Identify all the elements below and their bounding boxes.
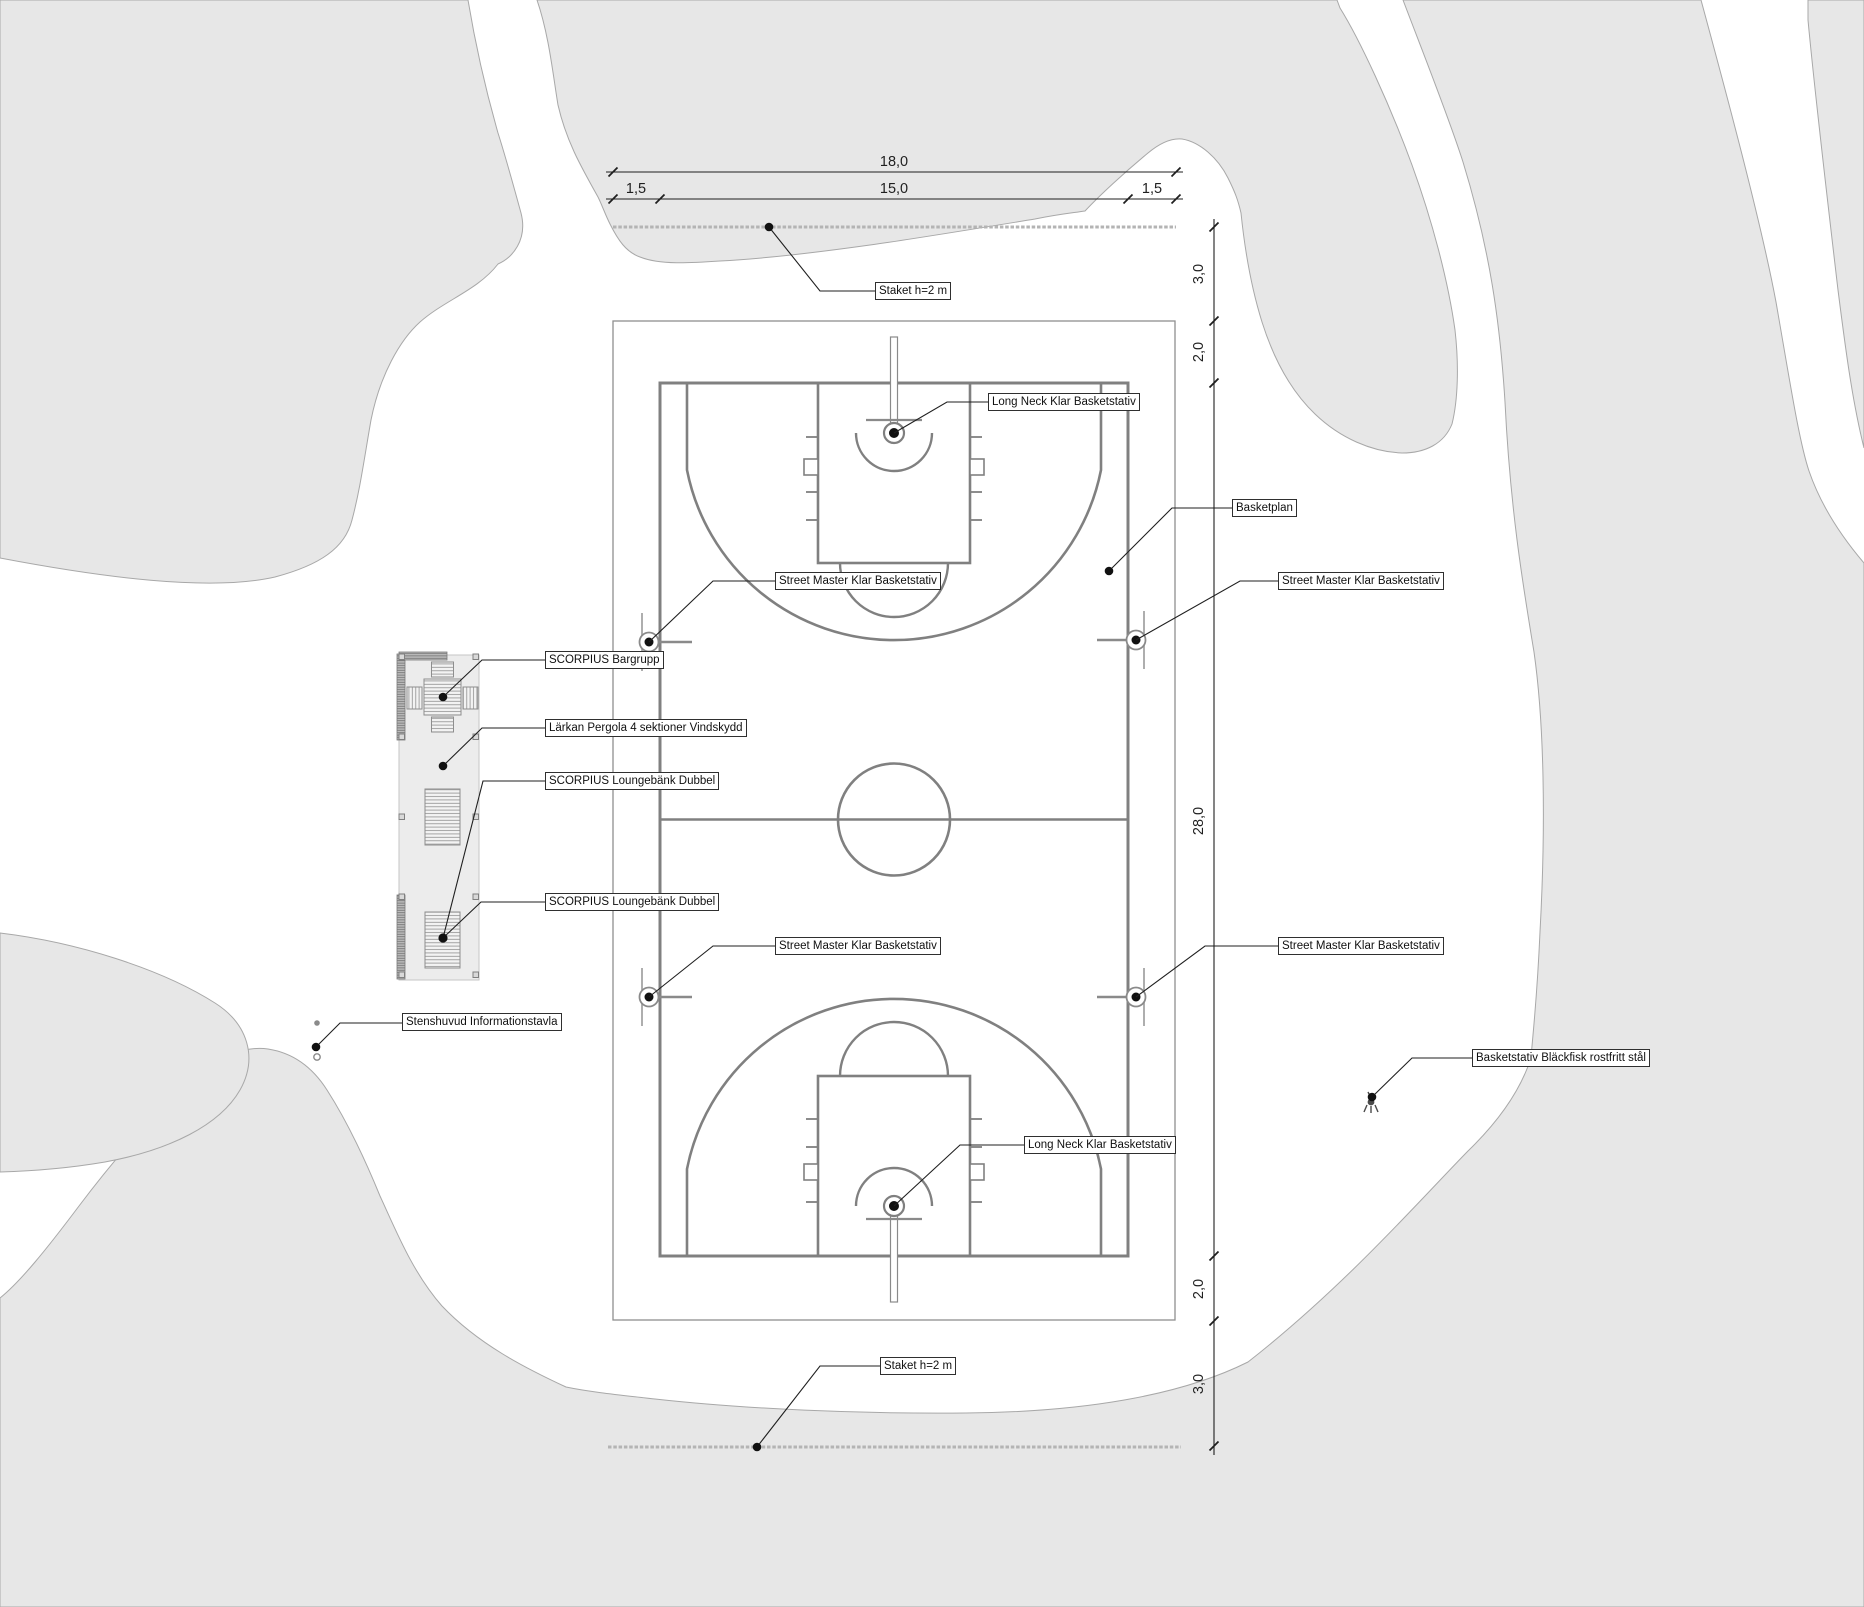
label-staket-top: Staket h=2 m bbox=[875, 282, 951, 300]
lounge-bench-1 bbox=[425, 789, 460, 845]
hoop-pole bbox=[891, 337, 898, 425]
leader-infotavla bbox=[316, 1023, 402, 1047]
lane-markers-top bbox=[804, 437, 984, 520]
long-neck-hoop-bottom bbox=[866, 1196, 922, 1302]
basketball-court bbox=[660, 383, 1128, 1256]
street-master-bottom-right bbox=[1097, 968, 1146, 1026]
dim-seg-right: 1,5 bbox=[1142, 181, 1162, 197]
dimensions-vertical: 3,0 2,0 28,0 2,0 3,0 bbox=[1191, 219, 1219, 1455]
leader-longneck-top bbox=[894, 402, 988, 433]
info-board-dot bbox=[314, 1020, 320, 1026]
label-streetmaster-br: Street Master Klar Basketstativ bbox=[1278, 937, 1444, 955]
label-streetmaster-tl: Street Master Klar Basketstativ bbox=[775, 572, 941, 590]
label-longneck-top: Long Neck Klar Basketstativ bbox=[988, 393, 1140, 411]
dim-seg-mid: 15,0 bbox=[880, 181, 908, 197]
label-staket-bottom: Staket h=2 m bbox=[880, 1357, 956, 1375]
lane-markers-bottom bbox=[804, 1119, 984, 1202]
leader-streetmaster-br bbox=[1136, 946, 1278, 997]
label-basketplan: Basketplan bbox=[1232, 499, 1297, 517]
label-lounge-2: SCORPIUS Loungebänk Dubbel bbox=[545, 893, 719, 911]
street-master-top-right bbox=[1097, 611, 1146, 669]
windscreen-wall-top bbox=[399, 652, 447, 660]
dim-seg-left: 1,5 bbox=[626, 181, 646, 197]
street-master-bottom-left bbox=[640, 968, 693, 1026]
hoop-pole bbox=[891, 1214, 898, 1302]
windscreen-wall-left-top bbox=[397, 654, 405, 740]
label-bargrupp: SCORPIUS Bargrupp bbox=[545, 651, 664, 669]
label-longneck-bottom: Long Neck Klar Basketstativ bbox=[1024, 1136, 1176, 1154]
label-lounge-1: SCORPIUS Loungebänk Dubbel bbox=[545, 772, 719, 790]
label-blackfisk: Basketstativ Bläckfisk rostfritt stål bbox=[1472, 1049, 1650, 1067]
leader-streetmaster-bl bbox=[649, 946, 775, 997]
dim-total-width: 18,0 bbox=[880, 154, 908, 170]
label-streetmaster-tr: Street Master Klar Basketstativ bbox=[1278, 572, 1444, 590]
long-neck-hoop-top bbox=[866, 337, 922, 443]
dim-v-3: 2,0 bbox=[1191, 1279, 1207, 1299]
info-board-ring bbox=[314, 1054, 320, 1060]
dim-v-2: 28,0 bbox=[1191, 807, 1207, 835]
leader-longneck-bottom bbox=[894, 1145, 1024, 1206]
free-throw-arc-bottom bbox=[840, 1022, 948, 1076]
label-infotavla: Stenshuvud Informationstavla bbox=[402, 1013, 562, 1031]
leader-blackfisk bbox=[1372, 1058, 1472, 1097]
info-board-marks bbox=[314, 1020, 320, 1060]
leader-streetmaster-tr bbox=[1136, 581, 1278, 640]
site-plan: 18,0 1,5 15,0 1,5 3,0 2,0 28,0 2,0 3,0 bbox=[0, 0, 1864, 1607]
dim-v-4: 3,0 bbox=[1191, 1374, 1207, 1394]
terrain-top-right-sliver bbox=[1808, 0, 1864, 448]
dim-v-1: 2,0 bbox=[1191, 342, 1207, 362]
label-pergola: Lärkan Pergola 4 sektioner Vindskydd bbox=[545, 719, 747, 737]
windscreen-wall-left-bottom bbox=[397, 895, 405, 979]
pergola-area bbox=[397, 652, 479, 980]
terrain-top-left bbox=[0, 0, 523, 583]
label-streetmaster-bl: Street Master Klar Basketstativ bbox=[775, 937, 941, 955]
dim-v-0: 3,0 bbox=[1191, 264, 1207, 284]
